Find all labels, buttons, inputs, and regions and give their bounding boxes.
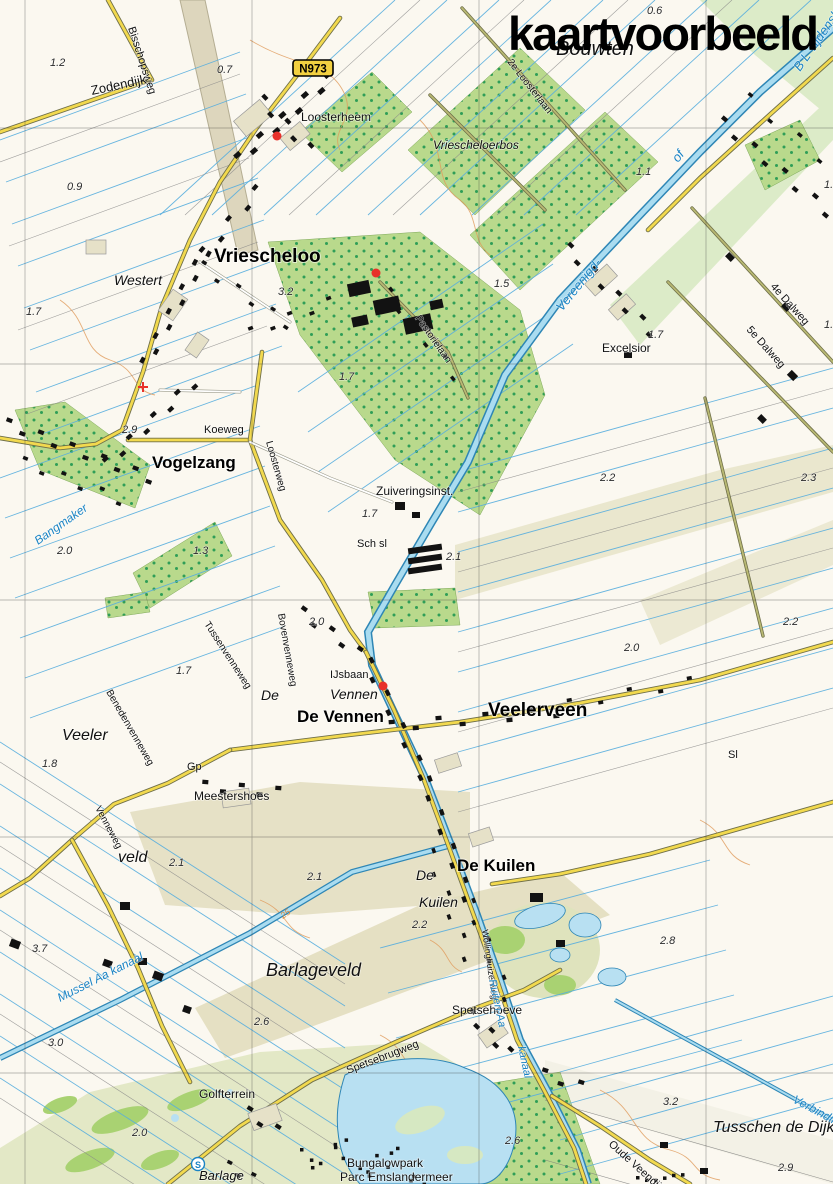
area-label: veld — [118, 849, 148, 866]
spot-label: 2.0 — [623, 642, 640, 654]
hamlet-label: Zuiveringsinst. — [376, 484, 453, 498]
area-label: De — [416, 867, 434, 883]
spot-label: 1.8 — [42, 758, 58, 770]
hamlet-label: Gp — [187, 761, 202, 773]
area-label: De — [261, 687, 279, 703]
red-poi-dot — [273, 132, 282, 141]
spot-label: 2.1 — [168, 857, 184, 869]
spot-label: 0.9 — [67, 181, 82, 193]
road-badge: N973 — [293, 60, 333, 76]
area-label: Barlage — [199, 1168, 244, 1183]
spot-label: 2.3 — [800, 472, 817, 484]
spot-label: 3.0 — [48, 1037, 64, 1049]
spot-label: 2.1 — [306, 871, 322, 883]
spot-label: 1.8 — [824, 179, 833, 191]
hamlet-label: Loosterheem — [301, 110, 371, 124]
hamlet-label: Sch sl — [357, 538, 387, 550]
sheet-title: kaartvoorbeeld — [508, 10, 817, 57]
spot-label: 2.0 — [131, 1127, 148, 1139]
spot-label: 2.9 — [121, 424, 137, 436]
hamlet-label: Bungalowpark — [347, 1156, 424, 1170]
spot-label: 2.6 — [253, 1016, 270, 1028]
area-label: Vennen — [330, 686, 378, 702]
hamlet-label: Meestershoes — [194, 789, 269, 803]
spot-label: 3.7 — [32, 943, 48, 955]
area-label: Westert — [114, 272, 163, 288]
red-poi-dot — [379, 682, 388, 691]
area-label: Vriescheloerbos — [433, 138, 519, 152]
spot-label: 2.2 — [782, 616, 798, 628]
spot-label: 0.7 — [217, 64, 233, 76]
spot-label: 1.3 — [193, 545, 209, 557]
hamlet-label: Koeweg — [204, 424, 244, 436]
place-label: De Vennen — [297, 707, 384, 726]
spot-label: 3.2 — [663, 1096, 678, 1108]
spot-label: 1.7 — [176, 665, 192, 677]
spot-label: 1.7 — [648, 329, 664, 341]
spot-label: 2.0 — [308, 616, 325, 628]
spot-label: 1.5 — [494, 278, 510, 290]
area-label: Barlageveld — [266, 960, 362, 980]
spot-label: 2.2 — [599, 472, 615, 484]
topo-map-sheet: S N973 VrieschelooVogelzangDe VennenVeel… — [0, 0, 833, 1184]
spot-label: 2.9 — [777, 1162, 793, 1174]
hamlet-label: Sl — [728, 749, 738, 761]
spot-label: 1.7 — [339, 371, 355, 383]
spot-label: 3.2 — [278, 286, 293, 298]
hamlet-label: Parc Emslandermeer — [340, 1170, 453, 1184]
spot-label: 2.0 — [56, 545, 73, 557]
area-label: Veeler — [62, 727, 108, 744]
spot-label: 1.1 — [636, 166, 651, 178]
hamlet-label: Golfterrein — [199, 1087, 255, 1101]
place-label: Veelerveen — [488, 700, 587, 721]
area-label: Kuilen — [419, 894, 458, 910]
spot-label: 2.6 — [504, 1135, 521, 1147]
spot-label: 1.2 — [50, 57, 65, 69]
map-canvas: S N973 VrieschelooVogelzangDe VennenVeel… — [0, 0, 833, 1184]
spot-label: 2.8 — [659, 935, 676, 947]
place-label: Vriescheloo — [214, 246, 321, 267]
road-badge-label: N973 — [299, 64, 327, 76]
hamlet-label: Excelsior — [602, 341, 651, 355]
place-label: Vogelzang — [152, 453, 236, 472]
spot-label: 2.1 — [445, 551, 461, 563]
spot-label: 1.7 — [26, 306, 42, 318]
red-poi-dot — [372, 269, 381, 278]
hamlet-label: IJsbaan — [330, 669, 369, 681]
spot-label: 1.6 — [824, 319, 833, 331]
place-label: De Kuilen — [457, 856, 535, 875]
hamlet-label: Spetsehoeve — [452, 1003, 522, 1017]
spot-label: 1.7 — [362, 508, 378, 520]
spot-label: 2.2 — [411, 919, 427, 931]
area-label: Tusschen de Dijken — [713, 1119, 833, 1136]
